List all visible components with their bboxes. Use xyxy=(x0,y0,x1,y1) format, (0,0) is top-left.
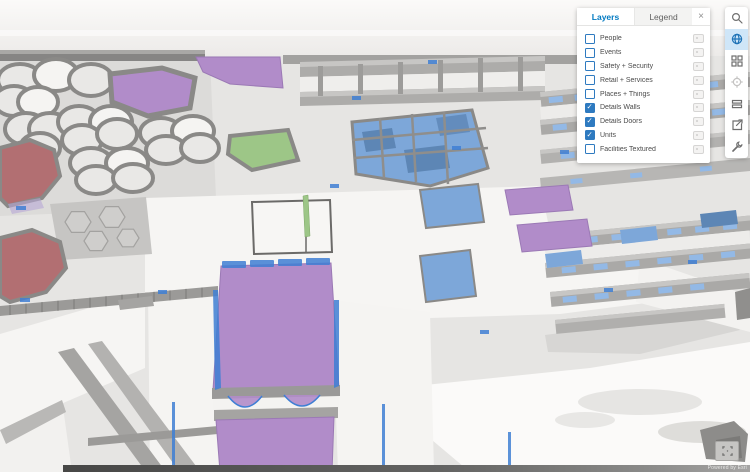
corner-brackets-icon xyxy=(722,446,733,456)
app-window: Powered by Esri Layers Legend × People E… xyxy=(0,0,750,472)
layer-row-places-things[interactable]: Places + Things xyxy=(585,87,704,101)
layer-label: Details Doors xyxy=(600,118,693,125)
layers-panel: Layers Legend × People Events Safety + S… xyxy=(577,8,710,163)
paving-hexagons xyxy=(50,197,152,260)
layer-options-icon[interactable] xyxy=(693,34,704,43)
locate-icon xyxy=(731,76,743,88)
layer-options-icon[interactable] xyxy=(693,90,704,99)
layer-label: People xyxy=(600,35,693,42)
search-icon xyxy=(731,12,743,24)
layer-options-icon[interactable] xyxy=(693,117,704,126)
fullscreen-button[interactable] xyxy=(715,441,739,461)
layer-options-icon[interactable] xyxy=(693,62,704,71)
basemap-button[interactable] xyxy=(725,50,748,72)
layer-options-icon[interactable] xyxy=(693,48,704,57)
layer-label: Retail + Services xyxy=(600,77,693,84)
wrench-icon xyxy=(731,141,743,153)
layer-label: Details Walls xyxy=(600,104,693,111)
locate-button[interactable] xyxy=(725,72,748,94)
layer-options-icon[interactable] xyxy=(693,103,704,112)
layer-row-retail-services[interactable]: Retail + Services xyxy=(585,73,704,87)
layer-options-icon[interactable] xyxy=(693,145,704,154)
tab-legend[interactable]: Legend xyxy=(634,8,692,25)
layer-list: People Events Safety + Security Retail +… xyxy=(577,26,710,163)
layer-checkbox[interactable] xyxy=(585,61,595,71)
layer-options-icon[interactable] xyxy=(693,131,704,140)
attribution-text: Powered by Esri xyxy=(708,465,747,472)
tab-layers[interactable]: Layers xyxy=(577,8,634,25)
layer-row-details-walls[interactable]: Details Walls xyxy=(585,101,704,115)
layer-label: Safety + Security xyxy=(600,63,693,70)
tools-button[interactable] xyxy=(725,136,748,158)
layer-label: Places + Things xyxy=(600,91,693,98)
layer-row-facilities-textured[interactable]: Facilities Textured xyxy=(585,142,704,156)
layer-row-units[interactable]: Units xyxy=(585,129,704,143)
globe-button[interactable] xyxy=(725,29,748,51)
layer-row-safety-security[interactable]: Safety + Security xyxy=(585,60,704,74)
basemap-grid-icon xyxy=(731,55,743,67)
layer-row-details-doors[interactable]: Details Doors xyxy=(585,115,704,129)
layer-checkbox[interactable] xyxy=(585,75,595,85)
layer-checkbox[interactable] xyxy=(585,48,595,58)
close-icon[interactable]: × xyxy=(692,8,710,25)
layer-checkbox[interactable] xyxy=(585,103,595,113)
search-button[interactable] xyxy=(725,7,748,29)
levels-icon xyxy=(731,98,743,110)
layer-checkbox[interactable] xyxy=(585,130,595,140)
courtyard-outline xyxy=(252,200,332,254)
layer-checkbox[interactable] xyxy=(585,89,595,99)
share-button[interactable] xyxy=(725,115,748,137)
layer-row-people[interactable]: People xyxy=(585,32,704,46)
share-icon xyxy=(731,119,743,131)
layer-options-icon[interactable] xyxy=(693,76,704,85)
map-frame-bar xyxy=(63,465,750,472)
panel-tabs: Layers Legend × xyxy=(577,8,710,26)
layer-label: Units xyxy=(600,132,693,139)
layer-label: Events xyxy=(600,49,693,56)
layer-label: Facilities Textured xyxy=(600,146,693,153)
globe-icon xyxy=(731,33,743,45)
layer-checkbox[interactable] xyxy=(585,144,595,154)
layer-row-events[interactable]: Events xyxy=(585,46,704,60)
layer-checkbox[interactable] xyxy=(585,34,595,44)
layer-checkbox[interactable] xyxy=(585,117,595,127)
map-toolbar xyxy=(725,7,748,158)
levels-button[interactable] xyxy=(725,93,748,115)
